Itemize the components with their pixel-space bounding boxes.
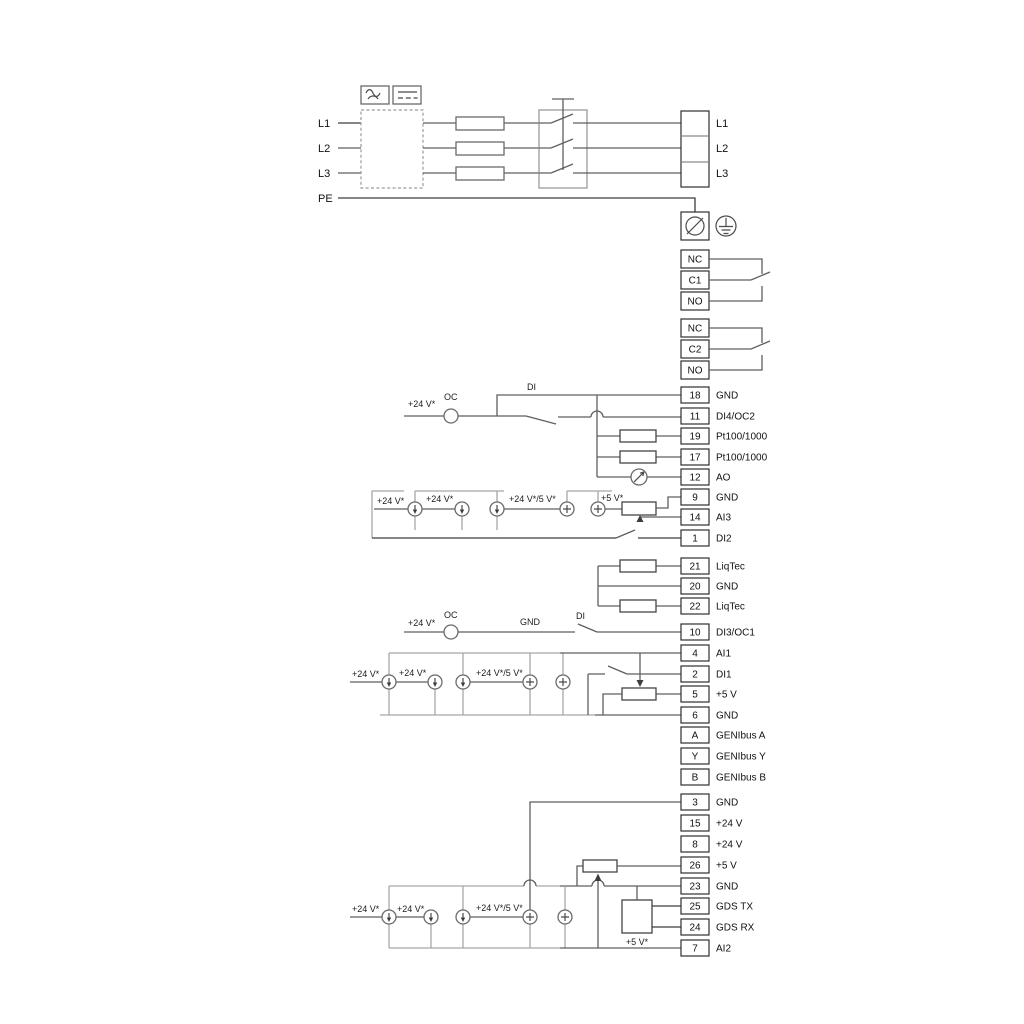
power-in-label-l2: L2 bbox=[318, 143, 330, 155]
label-24v-b2: +24 V* bbox=[426, 494, 454, 504]
power-out-label-l2: L2 bbox=[716, 143, 728, 155]
di1-switch-blade bbox=[608, 666, 627, 674]
group-liqtec bbox=[598, 560, 681, 612]
terminal-row: 26+5 V bbox=[681, 857, 737, 873]
label-oc-a: OC bbox=[444, 392, 458, 402]
label-5v-b: +5 V* bbox=[601, 493, 624, 503]
terminal-row: 20GND bbox=[681, 578, 738, 594]
terminal-row: 6GND bbox=[681, 707, 738, 723]
label-di-10: DI bbox=[576, 611, 585, 621]
oc-connector-circle-a bbox=[444, 409, 458, 423]
terminal-row: 4AI1 bbox=[681, 645, 731, 661]
terminal-num: 17 bbox=[689, 453, 701, 464]
terminal-label: LiqTec bbox=[716, 562, 745, 573]
frame-c-bottom-stubs bbox=[389, 689, 563, 715]
relay2: NC C2 NO bbox=[681, 319, 770, 379]
terminal-label: GND bbox=[716, 582, 738, 593]
terminal-label: +5 V bbox=[716, 690, 737, 701]
emc-filter-box bbox=[361, 110, 423, 188]
terminal-label: GDS TX bbox=[716, 902, 753, 913]
pot-wiper-arrow-b bbox=[637, 515, 644, 522]
label-24v-d1: +24 V* bbox=[352, 904, 380, 914]
wires-switch-to-terminals bbox=[573, 123, 681, 173]
terminal-label: GND bbox=[716, 391, 738, 402]
terminal-num: Y bbox=[692, 752, 699, 763]
terminal-num: 23 bbox=[689, 882, 701, 893]
terminal-row: 25GDS TX bbox=[681, 898, 753, 914]
group-ai1-di1: +24 V* +24 V* +24 V*/5 V* bbox=[350, 653, 681, 715]
power-out-label-l3: L3 bbox=[716, 168, 728, 180]
power-in-label-l1: L1 bbox=[318, 118, 330, 130]
terminal-num: 4 bbox=[692, 649, 698, 660]
wire-pot-to-gnd23 bbox=[577, 866, 583, 886]
label-24v5v-c: +24 V*/5 V* bbox=[476, 668, 523, 678]
terminal-row: 1DI2 bbox=[681, 530, 732, 546]
group-di4-pt100-ao: +24 V* OC DI bbox=[404, 382, 681, 485]
terminal-row: 19Pt100/1000 bbox=[681, 428, 768, 444]
terminal-label: GENIbus A bbox=[716, 731, 766, 742]
earth-ground-bars bbox=[719, 218, 733, 234]
fuse-l1 bbox=[456, 117, 504, 130]
liqtec-sensor-1 bbox=[620, 560, 656, 572]
relay1-wires bbox=[709, 259, 762, 301]
terminal-num: 11 bbox=[690, 412, 701, 423]
relay2-c2: C2 bbox=[689, 345, 702, 356]
terminal-num: A bbox=[692, 731, 699, 742]
label-24v-a: +24 V* bbox=[408, 399, 436, 409]
oc-connector-circle-10 bbox=[444, 625, 458, 639]
terminal-label: AI1 bbox=[716, 649, 731, 660]
label-24v-10: +24 V* bbox=[408, 618, 436, 628]
terminal-num: 19 bbox=[689, 432, 701, 443]
relay2-wires bbox=[709, 328, 762, 370]
di2-switch-blade bbox=[616, 530, 635, 538]
terminal-label: DI3/OC1 bbox=[716, 628, 755, 639]
relay2-no: NO bbox=[688, 366, 703, 377]
wire-pe bbox=[338, 198, 695, 212]
relay1-contact-blade bbox=[751, 272, 770, 280]
terminal-num: 26 bbox=[689, 861, 701, 872]
group-di3-oc1: +24 V* OC GND DI bbox=[404, 610, 681, 639]
group-gds-ai2: +24 V* +24 V* +24 V*/5 V* +5 V* bbox=[350, 802, 681, 948]
terminal-strip: 18GND 11DI4/OC2 19Pt100/1000 17Pt100/100… bbox=[681, 387, 768, 956]
terminal-num: 2 bbox=[692, 670, 698, 681]
power-in-label-l3: L3 bbox=[318, 168, 330, 180]
terminal-row: 10DI3/OC1 bbox=[681, 624, 755, 640]
terminal-num: 3 bbox=[692, 798, 698, 809]
terminal-row: 23GND bbox=[681, 878, 738, 894]
terminal-label: GENIbus Y bbox=[716, 752, 766, 763]
group-ai3-di2: +24 V* +24 V* +24 V*/5 V* +5 V* bbox=[372, 491, 681, 538]
pt100-resistor-1 bbox=[620, 430, 656, 442]
relay1-nc: NC bbox=[688, 255, 702, 266]
terminal-row: YGENIbus Y bbox=[681, 748, 766, 764]
power-section: L1 L2 L3 PE L1 L2 L3 bbox=[318, 86, 736, 240]
terminal-num: 5 bbox=[692, 690, 698, 701]
wire-gnd3 bbox=[530, 802, 681, 910]
label-24v5v-b: +24 V*/5 V* bbox=[509, 494, 556, 504]
label-oc-10: OC bbox=[444, 610, 458, 620]
frame-b-bottom-stubs bbox=[415, 516, 497, 530]
power-out-label-l1: L1 bbox=[716, 118, 728, 130]
relay2-contact-blade bbox=[751, 341, 770, 349]
terminal-label: GND bbox=[716, 882, 738, 893]
terminal-label: LiqTec bbox=[716, 602, 745, 613]
terminal-num: 8 bbox=[692, 840, 698, 851]
potentiometer-c bbox=[622, 688, 656, 700]
terminal-row: 3GND bbox=[681, 794, 738, 810]
terminal-num: 14 bbox=[689, 513, 701, 524]
terminal-row: 5+5 V bbox=[681, 686, 737, 702]
terminal-num: 15 bbox=[689, 819, 701, 830]
terminal-label: DI4/OC2 bbox=[716, 412, 755, 423]
di-switch-blade-a bbox=[526, 416, 556, 424]
terminal-num: 20 bbox=[689, 582, 701, 593]
relay1-no: NO bbox=[688, 297, 703, 308]
terminal-label: GND bbox=[716, 711, 738, 722]
terminal-num: 22 bbox=[689, 602, 701, 613]
terminal-label: AI2 bbox=[716, 944, 731, 955]
wire-di4-oc2 bbox=[558, 416, 681, 417]
terminal-label: +24 V bbox=[716, 840, 743, 851]
pt100-resistor-2 bbox=[620, 451, 656, 463]
potentiometer-d bbox=[583, 860, 617, 872]
terminal-label: Pt100/1000 bbox=[716, 432, 768, 443]
fuse-l3 bbox=[456, 167, 504, 180]
terminal-row: 21LiqTec bbox=[681, 558, 745, 574]
wiring-diagram: L1 L2 L3 PE L1 L2 L3 bbox=[0, 0, 1024, 1024]
terminal-row: 12AO bbox=[681, 469, 731, 485]
frame-d-bottom-stubs bbox=[389, 924, 565, 948]
label-24v-c2: +24 V* bbox=[399, 668, 427, 678]
terminal-num: 24 bbox=[689, 923, 701, 934]
terminal-row: 7AI2 bbox=[681, 940, 731, 956]
terminal-row: 2DI1 bbox=[681, 666, 732, 682]
wires-gds-txrx bbox=[652, 906, 681, 927]
label-5v-gds: +5 V* bbox=[626, 937, 649, 947]
ac-symbol-box bbox=[361, 86, 389, 104]
terminal-label: AI3 bbox=[716, 513, 731, 524]
terminal-row: BGENIbus B bbox=[681, 769, 766, 785]
terminal-row: AGENIbus A bbox=[681, 727, 766, 743]
terminal-label: +24 V bbox=[716, 819, 743, 830]
terminal-row: 22LiqTec bbox=[681, 598, 745, 614]
terminal-num: 1 bbox=[692, 534, 698, 545]
gds-sensor-box bbox=[622, 900, 652, 933]
terminal-row: 15+24 V bbox=[681, 815, 743, 831]
terminal-label: GDS RX bbox=[716, 923, 755, 934]
terminal-num: 10 bbox=[689, 628, 701, 639]
terminal-label: DI2 bbox=[716, 534, 732, 545]
pot-wiper-arrow-d bbox=[595, 874, 602, 882]
terminal-row: 11DI4/OC2 bbox=[681, 408, 755, 424]
terminal-label: +5 V bbox=[716, 861, 737, 872]
terminal-row: 24GDS RX bbox=[681, 919, 755, 935]
dc-symbol-box bbox=[393, 86, 421, 104]
terminal-num: 12 bbox=[689, 473, 701, 484]
fuse-l2 bbox=[456, 142, 504, 155]
terminal-label: Pt100/1000 bbox=[716, 453, 768, 464]
wire-pot-to-gnd bbox=[603, 694, 622, 715]
relay1-c1: C1 bbox=[689, 276, 702, 287]
terminal-label: GENIbus B bbox=[716, 773, 766, 784]
terminal-row: 18GND bbox=[681, 387, 738, 403]
terminal-row: 8+24 V bbox=[681, 836, 743, 852]
terminal-num: 21 bbox=[689, 562, 701, 573]
relay2-nc: NC bbox=[688, 324, 702, 335]
terminal-num: 25 bbox=[689, 902, 701, 913]
terminal-num: 9 bbox=[692, 493, 698, 504]
terminal-num: B bbox=[692, 773, 699, 784]
terminal-label: GND bbox=[716, 798, 738, 809]
label-24v-c1: +24 V* bbox=[352, 669, 380, 679]
terminal-row: 14AI3 bbox=[681, 509, 731, 525]
label-gnd-10: GND bbox=[520, 617, 541, 627]
terminal-row: 17Pt100/1000 bbox=[681, 449, 768, 465]
wire-pot-to-5v26 bbox=[617, 865, 681, 866]
terminal-num: 7 bbox=[692, 944, 698, 955]
wire-gnd18 bbox=[458, 395, 681, 416]
terminal-label: DI1 bbox=[716, 670, 732, 681]
label-di-a: DI bbox=[527, 382, 536, 392]
power-in-label-pe: PE bbox=[318, 193, 333, 205]
di3-switch-blade bbox=[578, 624, 597, 632]
label-24v5v-d: +24 V*/5 V* bbox=[476, 903, 523, 913]
terminal-num: 18 bbox=[689, 391, 701, 402]
terminal-label: AO bbox=[716, 473, 731, 484]
power-out-block bbox=[681, 111, 709, 187]
relay1: NC C1 NO bbox=[681, 250, 770, 310]
terminal-row: 9GND bbox=[681, 489, 738, 505]
terminal-num: 6 bbox=[692, 711, 698, 722]
pot-wiper-arrow-c bbox=[637, 680, 644, 687]
potentiometer-b bbox=[622, 502, 656, 515]
label-24v-b1: +24 V* bbox=[377, 496, 405, 506]
liqtec-sensor-2 bbox=[620, 600, 656, 612]
label-24v-d2: +24 V* bbox=[397, 904, 425, 914]
terminal-label: GND bbox=[716, 493, 738, 504]
wire-pot-to-gnd9 bbox=[656, 497, 681, 508]
